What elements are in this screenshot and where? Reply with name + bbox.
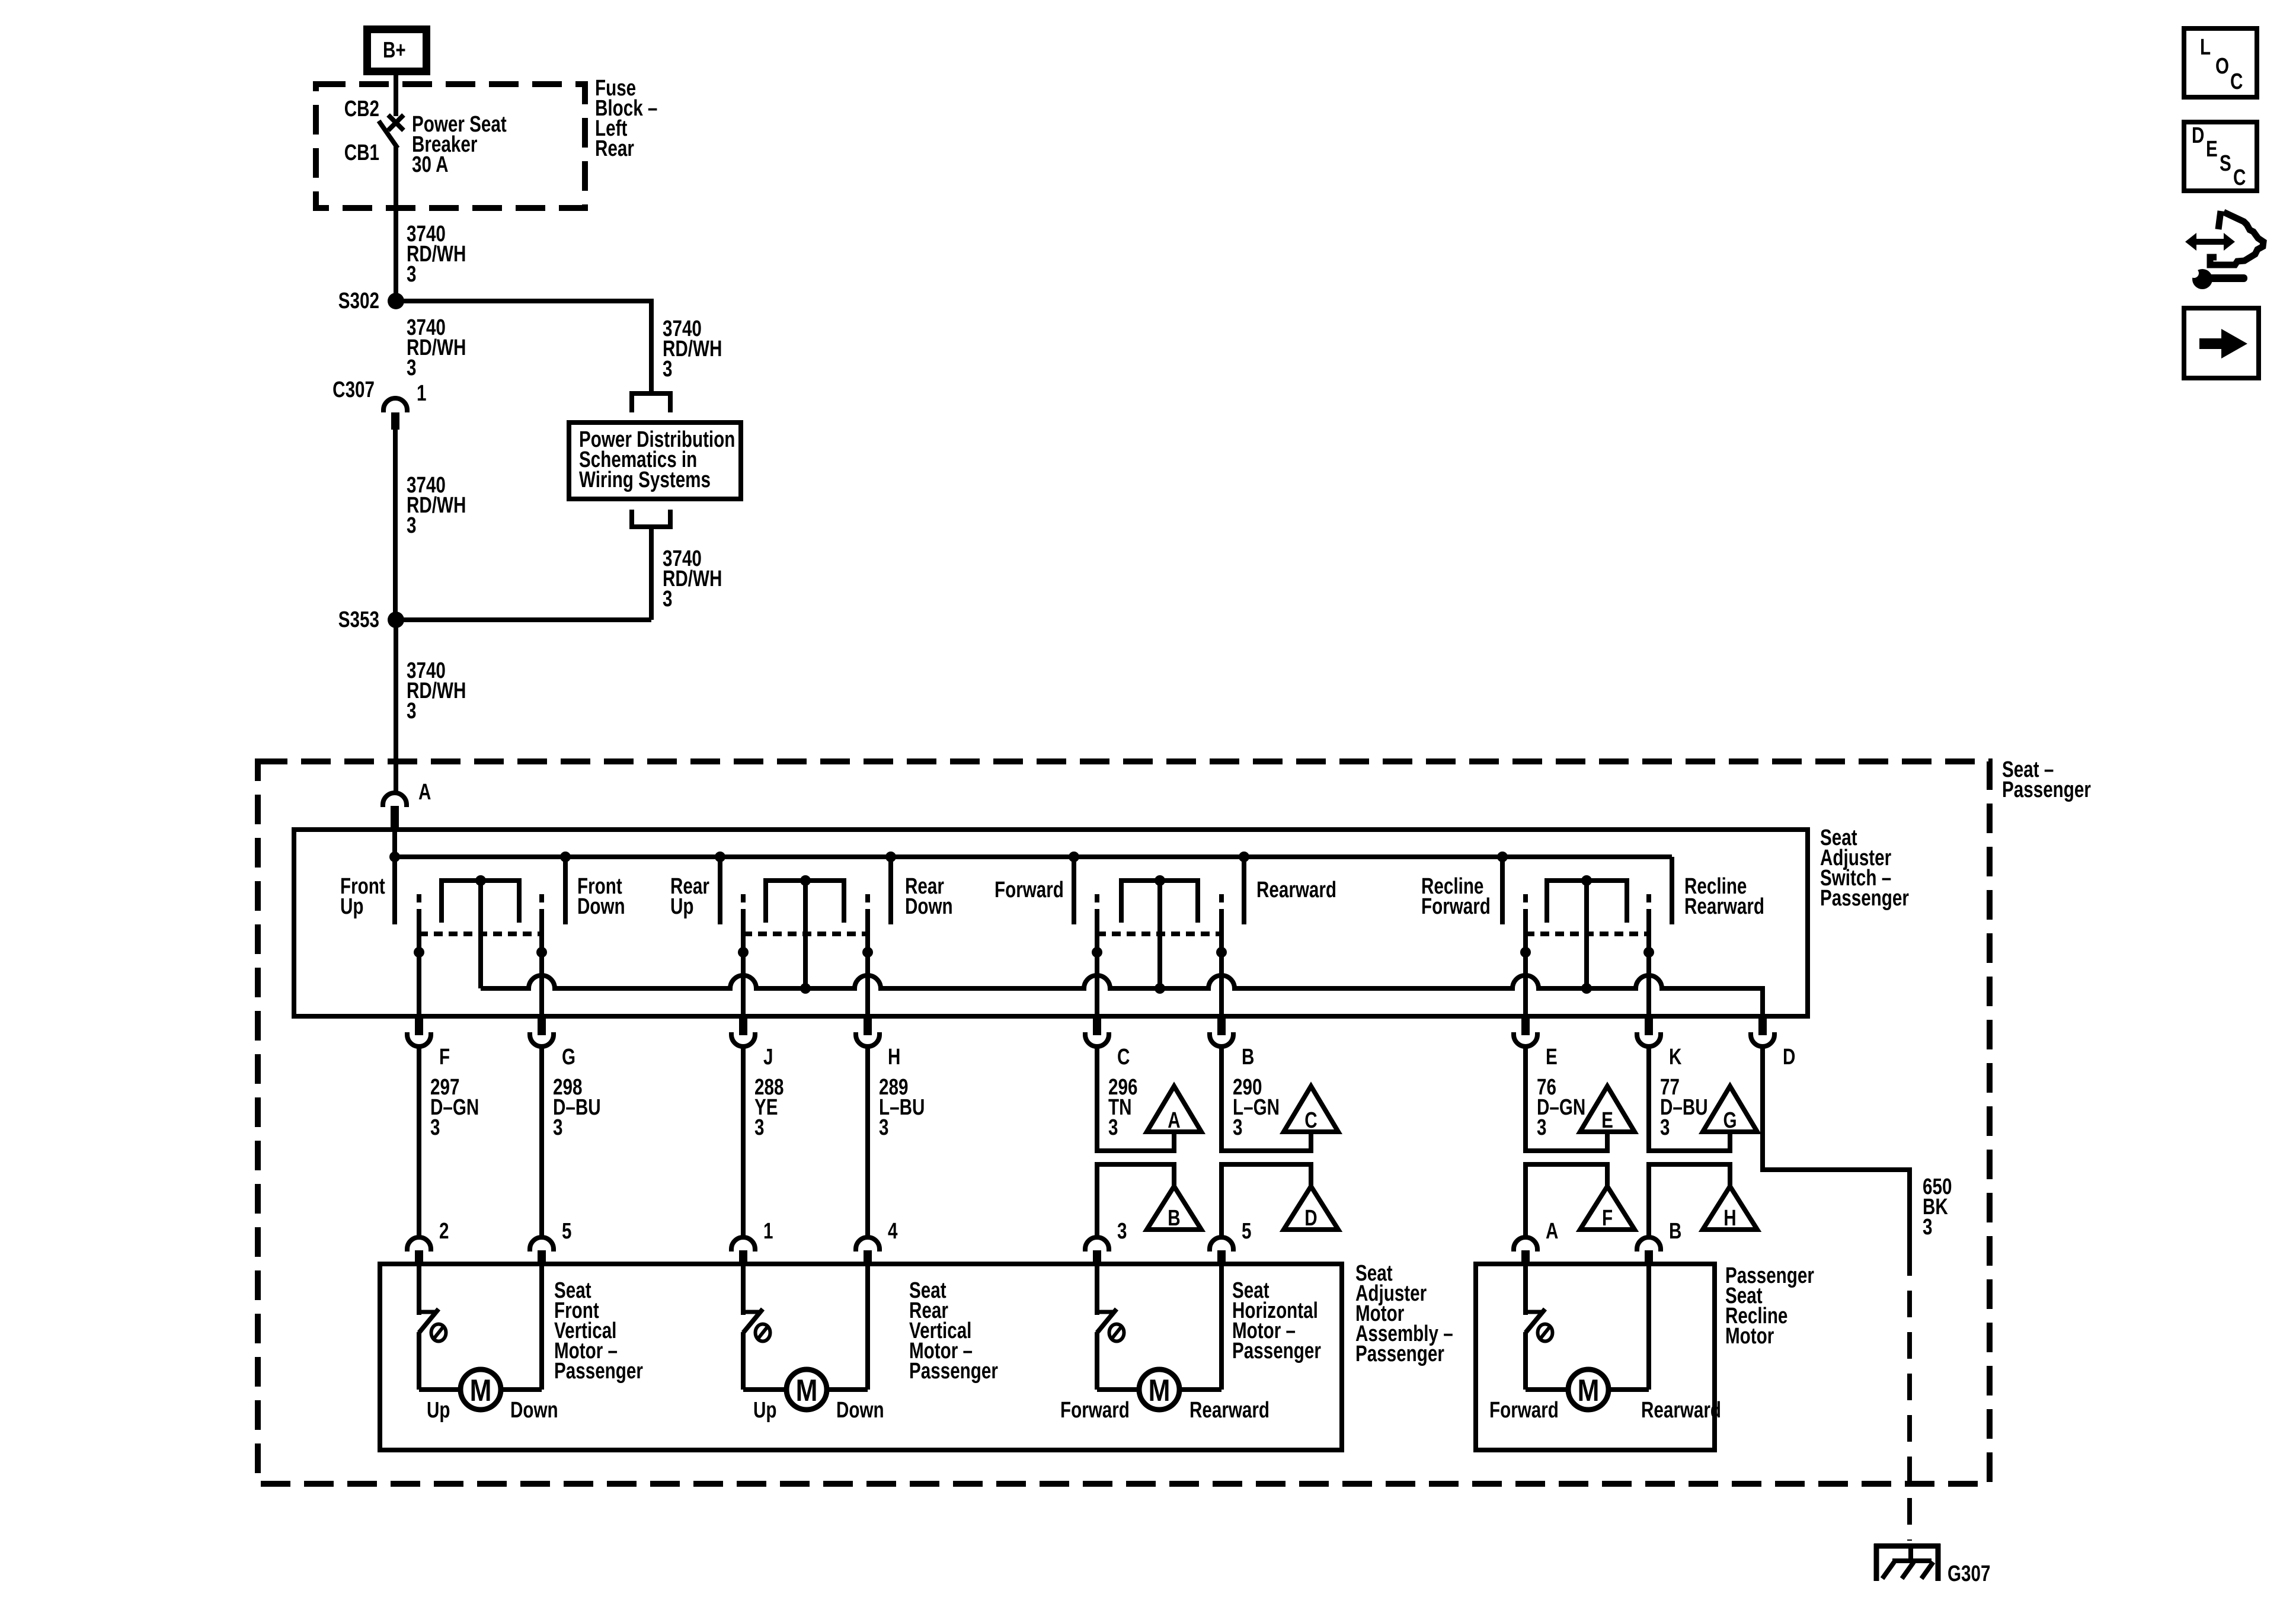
svg-text:J: J bbox=[763, 1045, 773, 1070]
svg-text:E: E bbox=[2206, 137, 2218, 162]
svg-text:3: 3 bbox=[754, 1115, 764, 1140]
svg-text:C: C bbox=[1117, 1045, 1130, 1070]
svg-text:S: S bbox=[2220, 151, 2231, 176]
svg-text:Up: Up bbox=[340, 894, 363, 919]
svg-text:D: D bbox=[2192, 123, 2204, 148]
svg-text:H: H bbox=[888, 1045, 900, 1070]
svg-text:3: 3 bbox=[1233, 1115, 1242, 1140]
svg-text:3: 3 bbox=[407, 699, 416, 724]
svg-text:K: K bbox=[1669, 1045, 1682, 1070]
svg-text:F: F bbox=[439, 1045, 450, 1070]
svg-text:E: E bbox=[1601, 1108, 1613, 1133]
svg-text:5: 5 bbox=[1242, 1219, 1251, 1244]
svg-text:Passenger: Passenger bbox=[1232, 1339, 1321, 1363]
svg-text:A: A bbox=[418, 780, 431, 805]
svg-text:C: C bbox=[2230, 69, 2243, 94]
svg-text:3: 3 bbox=[1537, 1115, 1546, 1140]
svg-text:G: G bbox=[562, 1045, 575, 1070]
svg-text:Passenger: Passenger bbox=[909, 1359, 998, 1384]
svg-text:3: 3 bbox=[1660, 1115, 1670, 1140]
svg-text:Forward: Forward bbox=[994, 878, 1064, 902]
svg-text:Down: Down bbox=[510, 1398, 558, 1423]
svg-text:C: C bbox=[2233, 165, 2246, 190]
svg-text:Motor: Motor bbox=[1725, 1324, 1774, 1349]
svg-text:G: G bbox=[1723, 1108, 1737, 1133]
svg-text:M: M bbox=[1149, 1374, 1171, 1408]
svg-text:3: 3 bbox=[1108, 1115, 1118, 1140]
svg-text:M: M bbox=[796, 1374, 818, 1408]
svg-text:3: 3 bbox=[430, 1115, 440, 1140]
svg-text:G307: G307 bbox=[1948, 1561, 1990, 1586]
svg-text:3: 3 bbox=[407, 513, 416, 538]
svg-text:S353: S353 bbox=[338, 607, 379, 632]
svg-text:B: B bbox=[1168, 1206, 1180, 1231]
svg-text:C: C bbox=[1304, 1108, 1317, 1133]
svg-text:Rearward: Rearward bbox=[1189, 1398, 1269, 1423]
svg-text:Passenger: Passenger bbox=[1820, 886, 1909, 911]
svg-text:Rearward: Rearward bbox=[1641, 1398, 1721, 1423]
svg-text:CB2: CB2 bbox=[344, 97, 379, 121]
svg-text:Rearward: Rearward bbox=[1684, 894, 1764, 919]
svg-text:B: B bbox=[1242, 1045, 1254, 1070]
svg-text:Up: Up bbox=[427, 1398, 450, 1423]
svg-text:H: H bbox=[1723, 1206, 1736, 1231]
svg-text:5: 5 bbox=[562, 1219, 571, 1244]
svg-text:E: E bbox=[1546, 1045, 1558, 1070]
svg-text:Passenger: Passenger bbox=[2002, 777, 2091, 802]
svg-text:3: 3 bbox=[1117, 1219, 1127, 1244]
svg-text:3: 3 bbox=[553, 1115, 562, 1140]
svg-text:3: 3 bbox=[1923, 1215, 1932, 1240]
svg-text:3: 3 bbox=[407, 262, 416, 287]
svg-text:Up: Up bbox=[670, 894, 693, 919]
svg-text:S302: S302 bbox=[338, 289, 379, 313]
svg-text:2: 2 bbox=[439, 1219, 449, 1244]
svg-text:D: D bbox=[1783, 1045, 1795, 1070]
svg-text:Forward: Forward bbox=[1060, 1398, 1130, 1423]
svg-text:L: L bbox=[2200, 35, 2211, 60]
svg-text:3: 3 bbox=[407, 356, 416, 380]
svg-text:Up: Up bbox=[753, 1398, 776, 1423]
svg-text:A: A bbox=[1168, 1108, 1180, 1133]
svg-text:Down: Down bbox=[836, 1398, 884, 1423]
svg-text:4: 4 bbox=[888, 1219, 898, 1244]
svg-text:Forward: Forward bbox=[1489, 1398, 1559, 1423]
svg-text:Passenger: Passenger bbox=[554, 1359, 643, 1384]
svg-text:Rear: Rear bbox=[595, 136, 634, 161]
svg-text:Down: Down bbox=[577, 894, 625, 919]
svg-text:B: B bbox=[1669, 1219, 1681, 1244]
svg-text:1: 1 bbox=[417, 381, 426, 406]
svg-text:M: M bbox=[470, 1374, 492, 1408]
svg-text:CB1: CB1 bbox=[344, 140, 379, 165]
svg-text:Passenger: Passenger bbox=[1355, 1342, 1444, 1366]
svg-text:3: 3 bbox=[663, 357, 672, 382]
svg-text:3: 3 bbox=[879, 1115, 888, 1140]
svg-text:C307: C307 bbox=[332, 377, 375, 402]
svg-text:F: F bbox=[1602, 1206, 1613, 1231]
svg-text:3: 3 bbox=[663, 587, 672, 612]
svg-text:M: M bbox=[1578, 1374, 1600, 1408]
svg-text:O: O bbox=[2215, 54, 2229, 79]
svg-text:Rearward: Rearward bbox=[1256, 878, 1336, 902]
svg-text:D: D bbox=[1304, 1206, 1317, 1231]
svg-text:30 A: 30 A bbox=[412, 152, 448, 177]
svg-text:1: 1 bbox=[763, 1219, 773, 1244]
svg-text:Down: Down bbox=[905, 894, 953, 919]
svg-text:Forward: Forward bbox=[1421, 894, 1491, 919]
svg-text:B+: B+ bbox=[383, 38, 406, 63]
svg-text:Wiring Systems: Wiring Systems bbox=[579, 468, 711, 492]
svg-text:A: A bbox=[1546, 1219, 1558, 1244]
